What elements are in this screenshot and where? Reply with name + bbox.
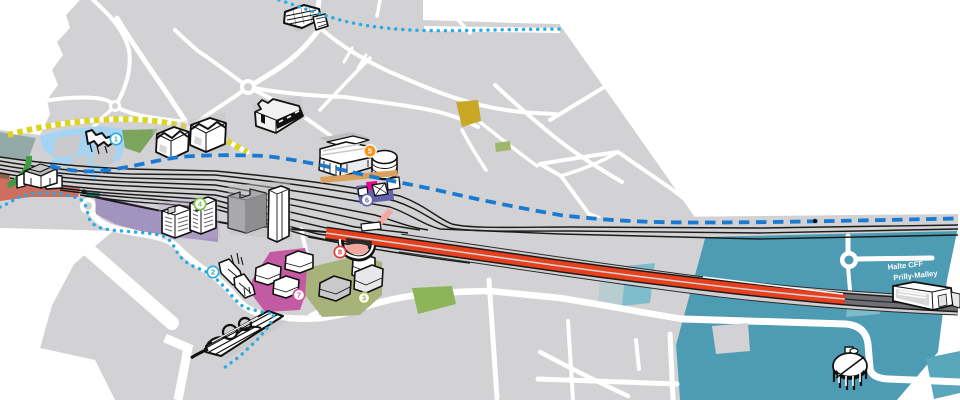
svg-text:6: 6 (365, 196, 369, 205)
svg-text:5: 5 (368, 147, 372, 156)
svg-text:3: 3 (362, 294, 366, 303)
svg-text:1: 1 (114, 135, 118, 144)
svg-text:2: 2 (211, 268, 215, 277)
svg-text:8: 8 (338, 248, 342, 257)
svg-text:7: 7 (297, 291, 301, 300)
